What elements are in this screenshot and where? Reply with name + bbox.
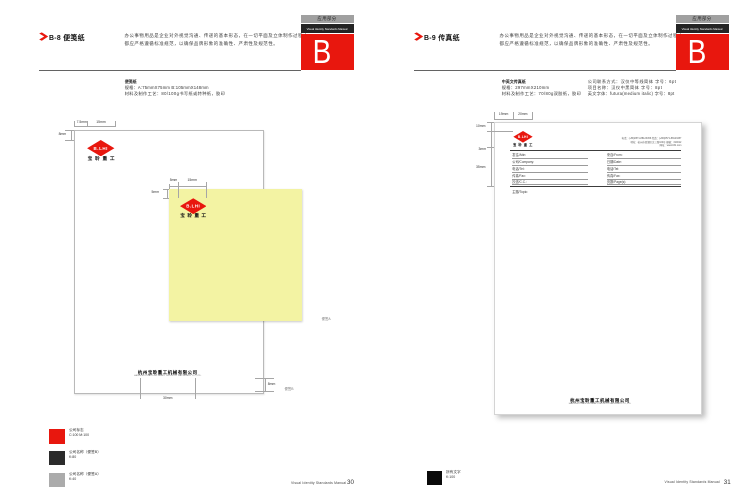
svg-text:B.LHI: B.LHI: [518, 135, 528, 139]
svg-text:B.LHI: B.LHI: [186, 203, 200, 208]
svg-text:B.LHI: B.LHI: [94, 146, 108, 151]
